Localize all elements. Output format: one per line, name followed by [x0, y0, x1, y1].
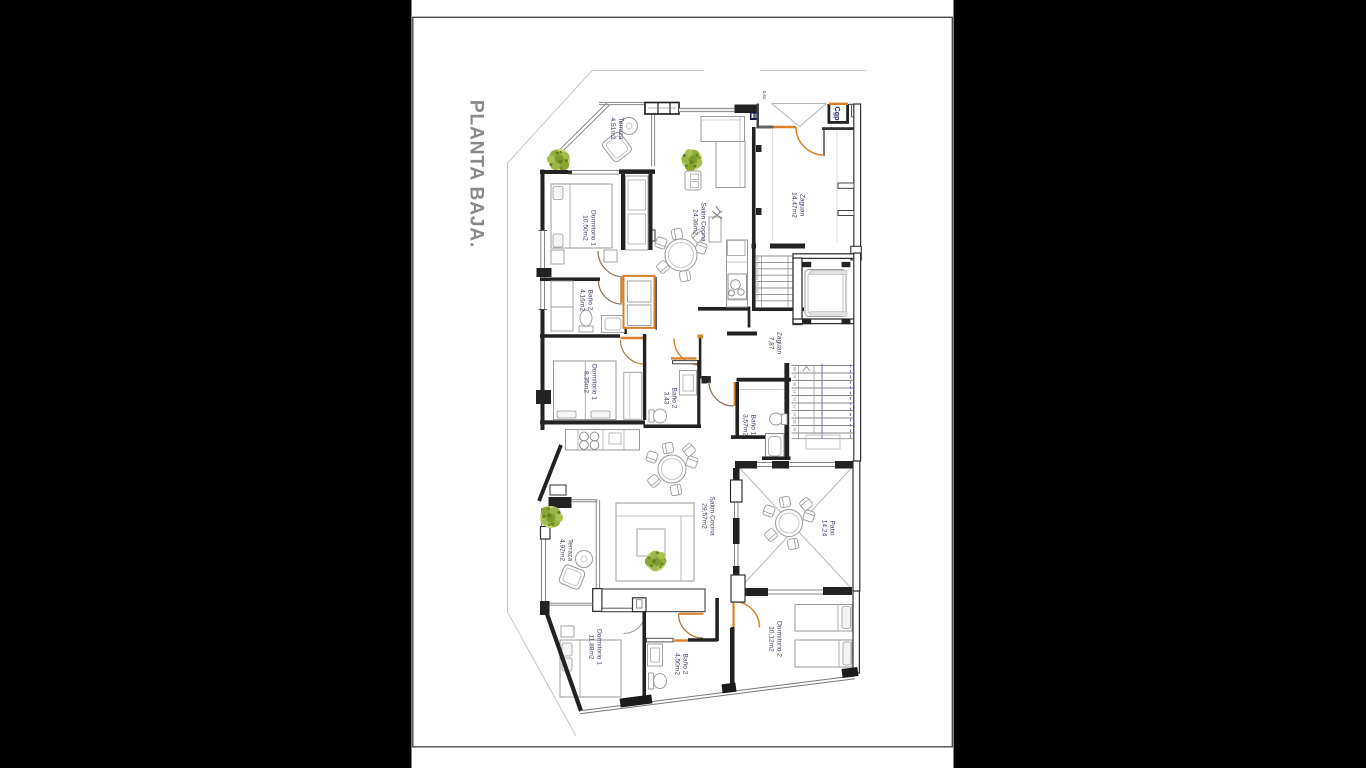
svg-text:Dormitorio 1: Dormitorio 1	[596, 629, 603, 665]
svg-text:Zaguan: Zaguan	[776, 332, 783, 355]
svg-text:14,24: 14,24	[821, 520, 828, 537]
svg-text:08: 08	[793, 367, 797, 371]
svg-text:24,36m2: 24,36m2	[692, 209, 699, 235]
svg-text:14,47m2: 14,47m2	[791, 192, 798, 218]
svg-text:13: 13	[793, 397, 797, 401]
svg-text:Dormitorio 1: Dormitorio 1	[591, 364, 598, 400]
svg-text:06: 06	[755, 289, 759, 293]
svg-text:11: 11	[793, 390, 797, 394]
svg-text:01: 01	[755, 257, 759, 261]
svg-text:11,88m2: 11,88m2	[588, 634, 595, 660]
svg-text:12: 12	[793, 405, 797, 409]
svg-text:10,50m2: 10,50m2	[582, 215, 589, 241]
svg-text:04: 04	[755, 276, 759, 280]
svg-text:4,50m2: 4,50m2	[674, 653, 681, 675]
svg-text:Terraza: Terraza	[617, 118, 624, 140]
svg-text:Dormitorio 2: Dormitorio 2	[776, 621, 783, 657]
svg-text:8,35m2: 8,35m2	[583, 371, 590, 393]
svg-text:16: 16	[793, 427, 797, 431]
svg-text:09: 09	[793, 375, 797, 379]
svg-text:Patio: Patio	[829, 520, 836, 535]
svg-text:4,51m2: 4,51m2	[609, 118, 616, 140]
svg-text:0,64: 0,64	[762, 91, 767, 100]
svg-text:3,43: 3,43	[663, 392, 670, 405]
svg-text:10,12m2: 10,12m2	[768, 626, 775, 652]
svg-text:Baño 2: Baño 2	[587, 290, 594, 311]
svg-text:10: 10	[793, 382, 797, 386]
svg-text:Terraza: Terraza	[567, 539, 574, 561]
svg-text:29,57m2: 29,57m2	[701, 503, 708, 529]
svg-text:Baño 2: Baño 2	[682, 654, 689, 675]
svg-text:Dormitorio 1: Dormitorio 1	[590, 210, 597, 246]
svg-text:Baño 1: Baño 1	[750, 415, 757, 436]
svg-text:Salon Cocina: Salon Cocina	[709, 496, 716, 536]
svg-text:Zaguan: Zaguan	[799, 194, 806, 217]
svg-text:3,57m2: 3,57m2	[742, 414, 749, 436]
svg-text:03: 03	[755, 270, 759, 274]
svg-text:Cgp: Cgp	[833, 107, 842, 122]
svg-text:15: 15	[793, 420, 797, 424]
svg-text:05: 05	[755, 283, 759, 287]
svg-text:4,16m2: 4,16m2	[579, 289, 586, 311]
svg-text:4,92m2: 4,92m2	[559, 539, 566, 561]
svg-text:07: 07	[755, 295, 759, 299]
svg-text:Baño 2: Baño 2	[671, 388, 678, 409]
svg-text:14: 14	[793, 412, 797, 416]
svg-text:7,87: 7,87	[768, 337, 775, 350]
svg-text:PLANTA BAJA.: PLANTA BAJA.	[466, 100, 487, 248]
svg-text:02: 02	[755, 263, 759, 267]
svg-text:Salon Cocina: Salon Cocina	[700, 202, 707, 242]
